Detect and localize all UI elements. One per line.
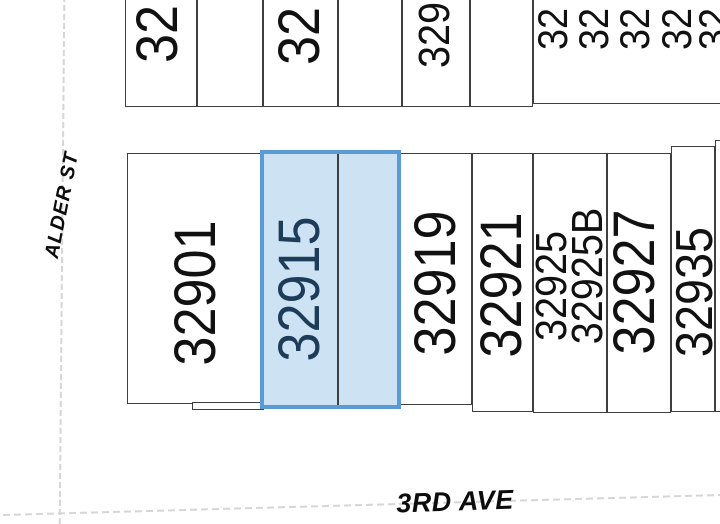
parcel-map: 32 32 329 32 32 32 32 32 32901 32915 329…: [0, 0, 720, 524]
lot-top-wide-label-3: 32: [614, 8, 656, 50]
lot-top-wide-label-2: 32: [573, 8, 615, 50]
parcel-32901-boundary-step: [192, 402, 264, 410]
third-ave-label: 3RD AVE: [396, 486, 514, 517]
parcel-32919-label: 32919: [407, 210, 465, 355]
lot-top-3-label: 32: [271, 7, 329, 65]
lot-top-wide-label-5: 32: [693, 8, 720, 50]
parcel-32927-label: 32927: [606, 209, 664, 354]
lot-top-1-label: 32: [129, 5, 187, 63]
lot-top-6[interactable]: [470, 0, 533, 107]
parcel-32921-label: 32921: [473, 212, 531, 357]
lot-top-wide-label-1: 32: [532, 8, 574, 50]
parcel-32935-label: 32935: [669, 227, 720, 357]
alder-st-centerline: [59, 0, 66, 524]
alder-st-label: ALDER ST: [42, 150, 82, 260]
lot-top-4[interactable]: [338, 0, 402, 107]
parcel-32901-label: 32901: [167, 220, 225, 365]
third-ave-centerline: [0, 494, 720, 517]
lot-top-5-label: 329: [413, 2, 457, 68]
lot-top-2[interactable]: [197, 0, 263, 107]
parcel-32915-label: 32915: [271, 216, 329, 361]
